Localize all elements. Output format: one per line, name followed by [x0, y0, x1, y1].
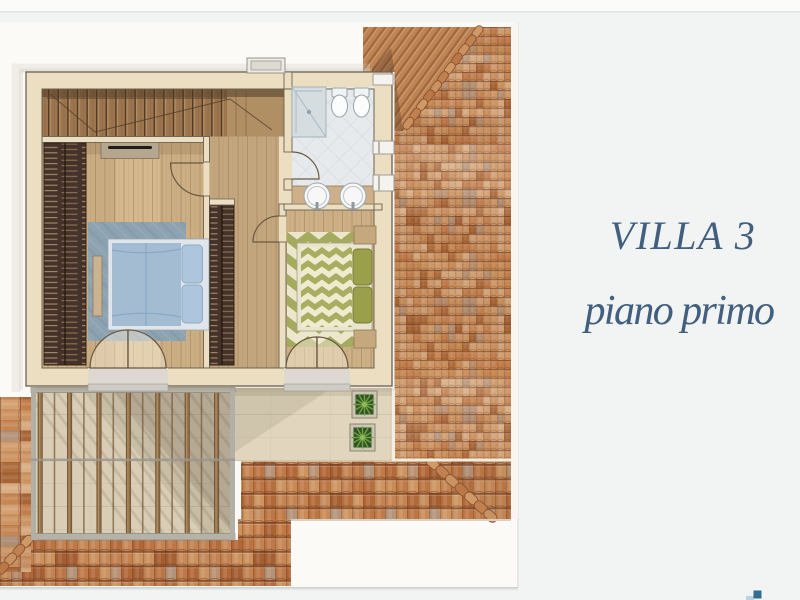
- svg-text:VILLA 3: VILLA 3: [610, 213, 756, 258]
- svg-text:piano primo: piano primo: [582, 288, 775, 334]
